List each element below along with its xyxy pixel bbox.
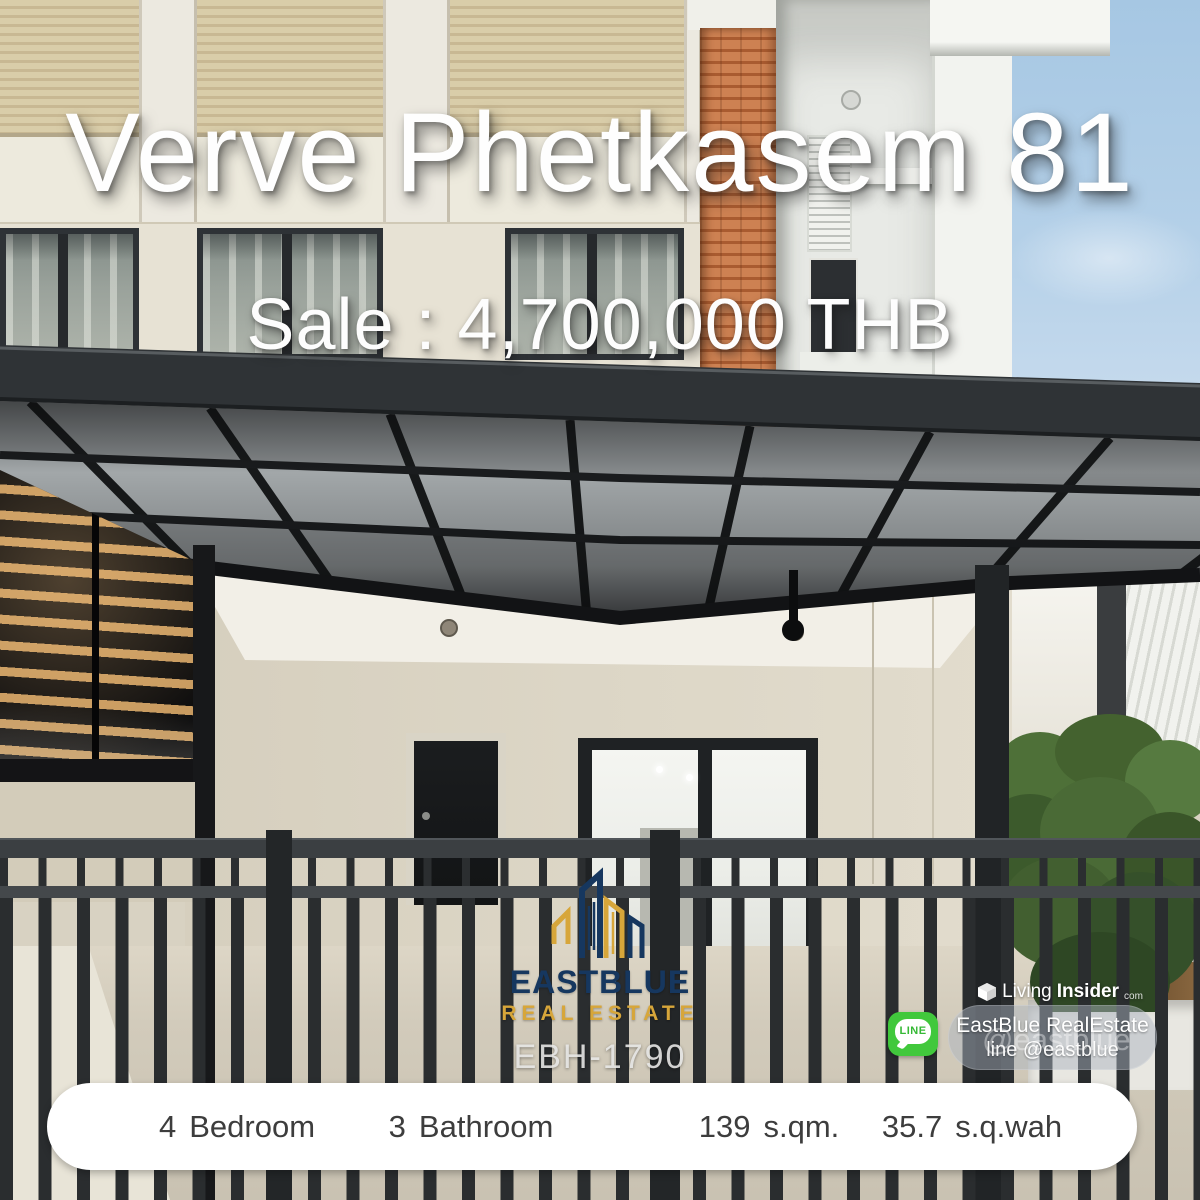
canopy-bracket bbox=[782, 619, 804, 641]
line-bubble: LINE bbox=[895, 1019, 931, 1044]
living-insider-word2: Insider bbox=[1057, 981, 1119, 1003]
listing-title: Verve Phetkasem 81 bbox=[0, 88, 1200, 217]
canopy-bracket bbox=[789, 570, 798, 625]
stat-bedrooms: 4Bedroom bbox=[159, 1109, 315, 1145]
fence-top-rail bbox=[0, 838, 1200, 858]
living-insider-suffix: com bbox=[1124, 991, 1143, 1002]
stats-bar: 4Bedroom 3Bathroom 139s.qm. 35.7s.q.wah bbox=[47, 1083, 1137, 1170]
eastblue-buildings-icon bbox=[542, 866, 658, 964]
listing-price: Sale : 4,700,000 THB bbox=[0, 284, 1200, 366]
interior-downlight bbox=[656, 766, 663, 773]
door-knob bbox=[422, 812, 430, 820]
interior-downlight bbox=[686, 774, 693, 781]
watermark: @eastblue bbox=[982, 1022, 1131, 1058]
stat-area-sqwah: 35.7s.q.wah bbox=[882, 1109, 1062, 1145]
living-insider-logo: LivingInsidercom bbox=[960, 980, 1160, 1004]
cube-icon bbox=[977, 982, 997, 1002]
living-insider-word1: Living bbox=[1002, 981, 1052, 1003]
stat-area-sqm: 139s.qm. bbox=[699, 1109, 840, 1145]
upper-balcony-slab bbox=[930, 0, 1110, 56]
louver-divider bbox=[92, 470, 99, 785]
listing-graphic: Verve Phetkasem 81 Sale : 4,700,000 THB … bbox=[0, 0, 1200, 1200]
line-messenger-icon: LINE bbox=[888, 1012, 938, 1056]
stat-bathrooms: 3Bathroom bbox=[389, 1109, 554, 1145]
